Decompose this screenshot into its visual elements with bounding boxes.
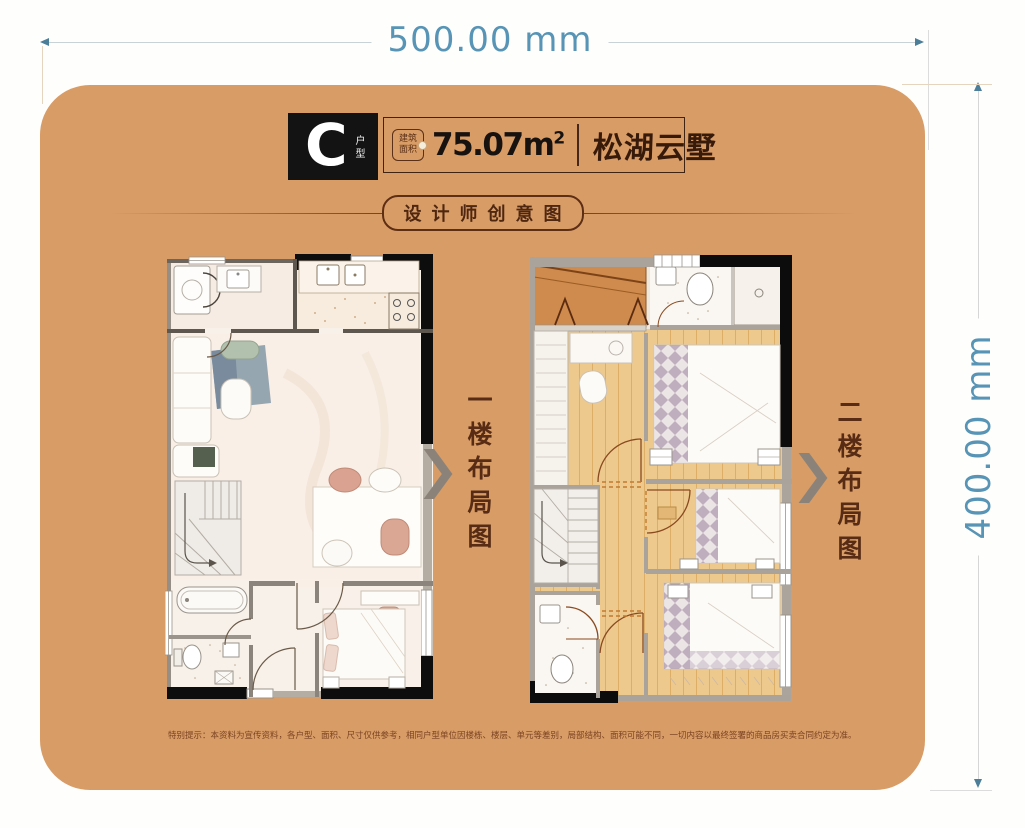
area-badge: 建筑 面积 bbox=[392, 129, 424, 161]
subtitle-line-right bbox=[584, 213, 856, 214]
dimension-arrow-down-icon bbox=[974, 779, 982, 788]
extension-line bbox=[930, 790, 992, 791]
brochure-card: C 户型 建筑 面积 75.07m2 松湖云墅 设计师创意图 bbox=[40, 85, 925, 790]
dimension-arrow-right-icon bbox=[915, 38, 924, 46]
subtitle-line-left bbox=[110, 213, 382, 214]
badge-dot-icon bbox=[418, 141, 427, 150]
unit-type-block: C 户型 bbox=[288, 113, 378, 180]
area-badge-line1: 建筑 bbox=[399, 134, 417, 145]
area-badge-line2: 面积 bbox=[399, 145, 417, 156]
dimension-arrow-left-icon bbox=[40, 38, 49, 46]
first-floor-plan bbox=[165, 253, 437, 703]
header-divider bbox=[577, 124, 579, 166]
extension-line bbox=[902, 84, 992, 85]
subtitle-pill: 设计师创意图 bbox=[382, 195, 584, 231]
extension-line bbox=[42, 46, 43, 104]
height-dimension-label: 400.00 mm bbox=[959, 318, 999, 555]
disclaimer-text: 特别提示：本资料为宣传资料，各户型、面积、尺寸仅供参考，相同户型单位因楼栋、楼层… bbox=[168, 729, 848, 741]
brand-name: 松湖云墅 bbox=[592, 123, 718, 167]
brochure-page: 500.00 mm 400.00 mm C 户型 建筑 面积 75.07m2 松… bbox=[0, 0, 1025, 828]
second-floor-label: 二楼布局图 bbox=[830, 399, 866, 569]
unit-letter: C bbox=[305, 113, 348, 177]
first-floor-label: 一楼布局图 bbox=[460, 387, 496, 557]
area-value: 75.07m2 bbox=[432, 127, 565, 163]
second-floor-plan bbox=[528, 253, 793, 705]
arrow-right-icon bbox=[423, 449, 453, 499]
arrow-right-icon bbox=[798, 453, 828, 503]
area-brand-box: 建筑 面积 75.07m2 松湖云墅 bbox=[383, 117, 685, 173]
unit-type-label: 户型 bbox=[351, 135, 366, 161]
subtitle: 设计师创意图 bbox=[40, 195, 925, 231]
width-dimension-label: 500.00 mm bbox=[371, 20, 608, 60]
extension-line bbox=[928, 30, 929, 150]
